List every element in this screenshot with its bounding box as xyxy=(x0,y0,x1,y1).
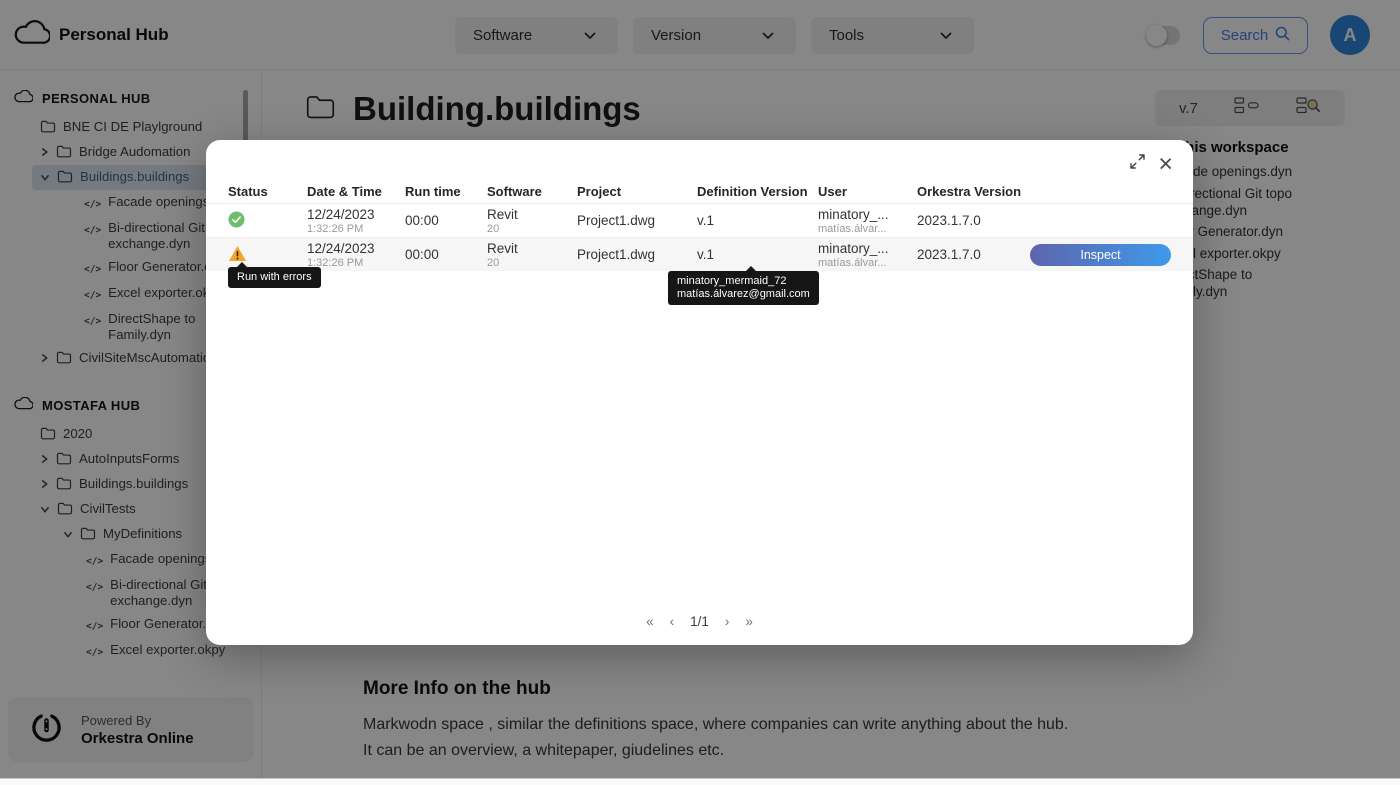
software-name: Revit xyxy=(487,207,577,222)
project-name: Project1.dwg xyxy=(577,213,697,228)
user-tooltip-email: matías.álvarez@gmail.com xyxy=(677,288,810,301)
app-root: Personal Hub Software Version Tools Sear… xyxy=(0,0,1400,785)
definition-version: v.1 xyxy=(697,213,818,228)
user-tooltip-name: minatory_mermaid_72 xyxy=(677,275,810,288)
first-page-icon[interactable]: « xyxy=(646,614,654,629)
page-indicator: 1/1 xyxy=(690,614,709,629)
next-page-icon[interactable]: › xyxy=(725,614,730,629)
software-version: 20 xyxy=(487,223,577,235)
software-name: Revit xyxy=(487,241,577,256)
col-software: Software xyxy=(487,184,577,199)
definition-version: v.1 xyxy=(697,247,818,262)
col-date-time: Date & Time xyxy=(307,184,405,199)
col-user: User xyxy=(818,184,917,199)
col-status: Status xyxy=(228,184,307,199)
col-orkestra-version: Orkestra Version xyxy=(917,184,1030,199)
run-date: 12/24/2023 xyxy=(307,241,405,256)
user-name: minatory_... xyxy=(818,207,917,222)
table-header-row: Status Date & Time Run time Software Pro… xyxy=(206,180,1193,203)
project-name: Project1.dwg xyxy=(577,247,697,262)
prev-page-icon[interactable]: ‹ xyxy=(670,614,675,629)
user-email: matías.álvar... xyxy=(818,257,917,269)
pagination: « ‹ 1/1 › » xyxy=(206,614,1193,629)
run-duration: 00:00 xyxy=(405,213,487,228)
success-icon xyxy=(228,211,245,228)
last-page-icon[interactable]: » xyxy=(745,614,753,629)
table-row[interactable]: 12/24/2023 1:32:26 PM 00:00 Revit 20 Pro… xyxy=(206,237,1193,271)
run-date: 12/24/2023 xyxy=(307,207,405,222)
table-row[interactable]: 12/24/2023 1:32:26 PM 00:00 Revit 20 Pro… xyxy=(206,203,1193,237)
col-definition-version: Definition Version xyxy=(697,184,818,199)
user-email: matías.álvar... xyxy=(818,223,917,235)
close-icon[interactable]: × xyxy=(1158,155,1173,173)
col-run-time: Run time xyxy=(405,184,487,199)
user-tooltip: minatory_mermaid_72 matías.álvarez@gmail… xyxy=(668,271,819,305)
inspect-button[interactable]: Inspect xyxy=(1030,244,1171,266)
user-name: minatory_... xyxy=(818,241,917,256)
bottom-strip xyxy=(0,778,1400,785)
warning-icon xyxy=(228,245,247,262)
orkestra-version: 2023.1.7.0 xyxy=(917,247,1030,262)
run-time-of-day: 1:32:26 PM xyxy=(307,223,405,235)
runs-modal: × Status Date & Time Run time Software P… xyxy=(206,140,1193,645)
status-tooltip: Run with errors xyxy=(228,267,321,288)
run-duration: 00:00 xyxy=(405,247,487,262)
orkestra-version: 2023.1.7.0 xyxy=(917,213,1030,228)
expand-icon[interactable] xyxy=(1129,153,1146,175)
software-version: 20 xyxy=(487,257,577,269)
col-project: Project xyxy=(577,184,697,199)
run-time-of-day: 1:32:26 PM xyxy=(307,257,405,269)
